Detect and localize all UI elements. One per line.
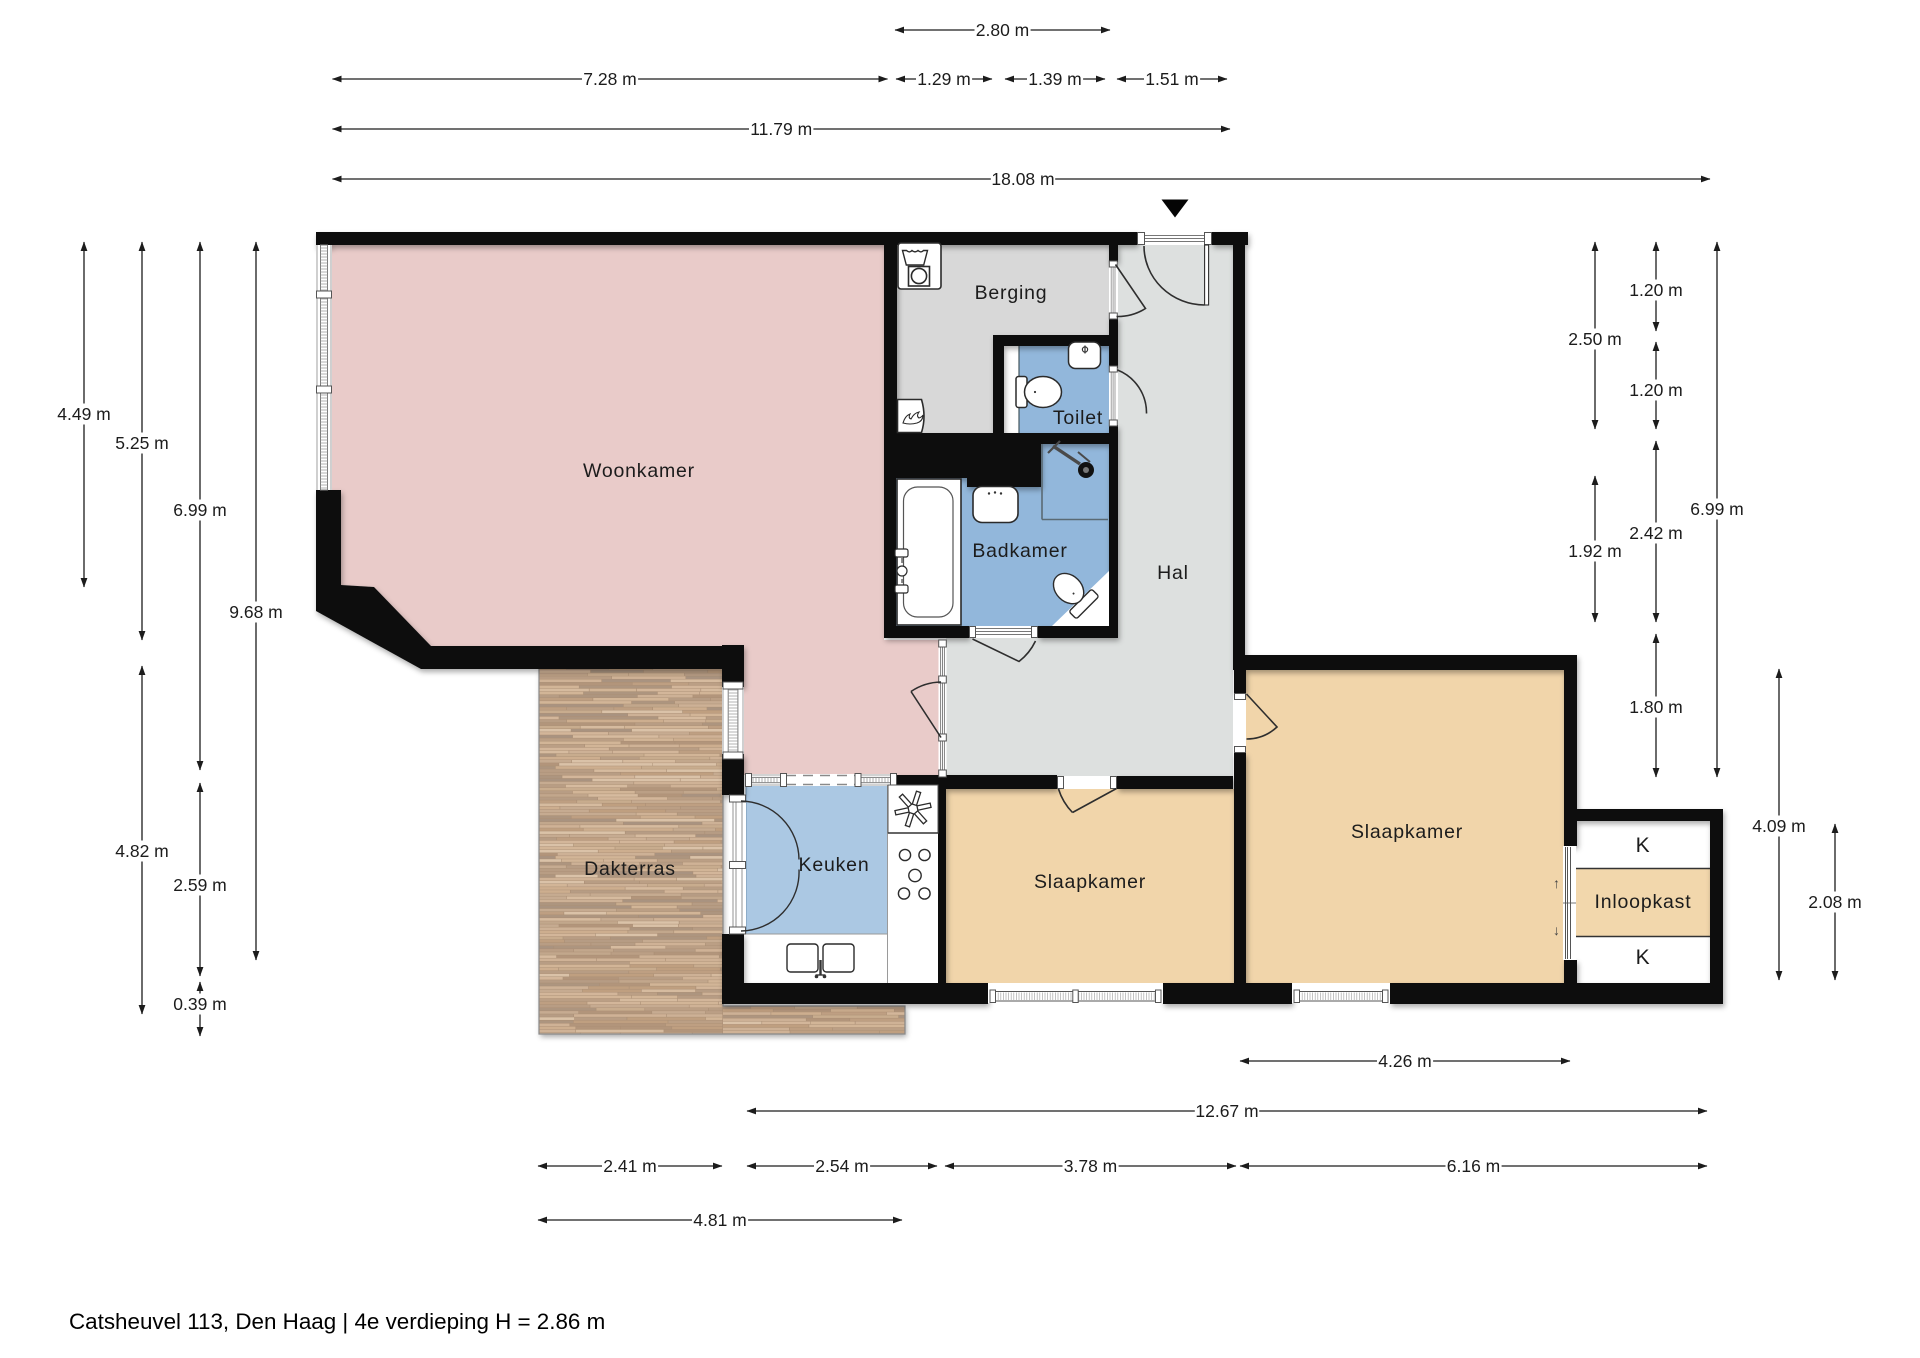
svg-text:↑: ↑ bbox=[1553, 875, 1560, 891]
svg-text:K: K bbox=[1636, 946, 1651, 969]
svg-text:2.59 m: 2.59 m bbox=[173, 875, 227, 895]
svg-text:Inloopkast: Inloopkast bbox=[1595, 891, 1692, 913]
svg-text:Badkamer: Badkamer bbox=[972, 540, 1067, 562]
svg-text:4.26 m: 4.26 m bbox=[1378, 1051, 1432, 1071]
svg-text:2.41 m: 2.41 m bbox=[603, 1156, 657, 1176]
svg-text:0.39 m: 0.39 m bbox=[173, 994, 227, 1014]
svg-text:Catsheuvel 113, Den Haag | 4e: Catsheuvel 113, Den Haag | 4e verdieping… bbox=[69, 1309, 605, 1334]
svg-text:6.99 m: 6.99 m bbox=[1690, 499, 1744, 519]
svg-text:4.09 m: 4.09 m bbox=[1752, 816, 1806, 836]
svg-text:9.68 m: 9.68 m bbox=[229, 602, 283, 622]
svg-text:↓: ↓ bbox=[1553, 922, 1560, 938]
svg-text:Woonkamer: Woonkamer bbox=[583, 460, 695, 482]
svg-text:12.67 m: 12.67 m bbox=[1195, 1101, 1258, 1121]
svg-text:6.16 m: 6.16 m bbox=[1447, 1156, 1501, 1176]
svg-text:1.92 m: 1.92 m bbox=[1568, 541, 1622, 561]
svg-text:5.25 m: 5.25 m bbox=[115, 433, 169, 453]
svg-text:1.29 m: 1.29 m bbox=[917, 69, 971, 89]
svg-text:4.82 m: 4.82 m bbox=[115, 841, 169, 861]
svg-text:3.78 m: 3.78 m bbox=[1064, 1156, 1118, 1176]
svg-text:11.79 m: 11.79 m bbox=[750, 119, 812, 139]
svg-text:2.42 m: 2.42 m bbox=[1629, 523, 1683, 543]
svg-text:Hal: Hal bbox=[1157, 562, 1189, 584]
svg-text:Slaapkamer: Slaapkamer bbox=[1351, 821, 1463, 843]
svg-text:2.80 m: 2.80 m bbox=[976, 20, 1030, 40]
svg-text:18.08 m: 18.08 m bbox=[991, 169, 1054, 189]
svg-text:Keuken: Keuken bbox=[799, 854, 870, 876]
svg-text:6.99 m: 6.99 m bbox=[173, 500, 227, 520]
svg-text:Dakterras: Dakterras bbox=[584, 858, 676, 880]
svg-text:1.80 m: 1.80 m bbox=[1629, 697, 1683, 717]
svg-text:Toilet: Toilet bbox=[1053, 407, 1103, 429]
svg-text:K: K bbox=[1636, 834, 1651, 857]
svg-text:2.54 m: 2.54 m bbox=[815, 1156, 869, 1176]
svg-text:2.50 m: 2.50 m bbox=[1568, 329, 1622, 349]
svg-text:Berging: Berging bbox=[975, 282, 1048, 304]
svg-text:1.20 m: 1.20 m bbox=[1629, 380, 1683, 400]
svg-text:4.81 m: 4.81 m bbox=[693, 1210, 747, 1230]
svg-text:1.51 m: 1.51 m bbox=[1145, 69, 1199, 89]
svg-text:2.08 m: 2.08 m bbox=[1808, 892, 1862, 912]
svg-text:7.28 m: 7.28 m bbox=[583, 69, 637, 89]
svg-text:Slaapkamer: Slaapkamer bbox=[1034, 871, 1146, 893]
svg-text:1.39 m: 1.39 m bbox=[1028, 69, 1082, 89]
svg-text:4.49 m: 4.49 m bbox=[57, 404, 111, 424]
svg-text:1.20 m: 1.20 m bbox=[1629, 280, 1683, 300]
